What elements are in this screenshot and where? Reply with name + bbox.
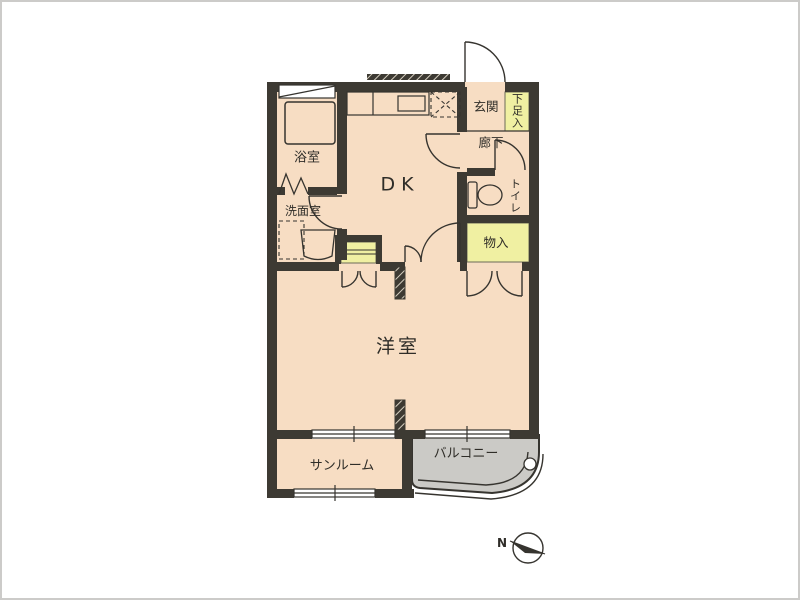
balcony-drain-icon (524, 458, 536, 470)
window-bathroom (279, 85, 335, 98)
room-label-bathroom: 浴室 (294, 152, 320, 165)
room-label-shoe-cabinet: 下足入 (512, 93, 523, 129)
room-label-entrance: 玄関 (473, 101, 498, 114)
room-label-western-room: 洋室 (376, 338, 420, 357)
north-label: N (497, 537, 507, 549)
floorplan-drawing (2, 2, 800, 600)
room-label-balcony: バルコニー (434, 448, 499, 461)
room-label-storage: 物入 (483, 237, 508, 250)
compass-icon (510, 533, 545, 563)
room-label-hallway: 廊下 (478, 137, 503, 150)
room-label-toilet: トイレ (510, 178, 521, 214)
room-label-sunroom: サンルーム (310, 460, 375, 473)
entrance-door (465, 42, 505, 82)
room-label-dk: DK (380, 176, 419, 195)
floorplan-image: 浴室 洗面室 DK 玄関 下足入 廊下 トイレ 物入 洋室 サンルーム バルコニ… (0, 0, 800, 600)
room-label-washroom: 洗面室 (285, 205, 321, 217)
exterior-hatch-strip (367, 74, 450, 80)
